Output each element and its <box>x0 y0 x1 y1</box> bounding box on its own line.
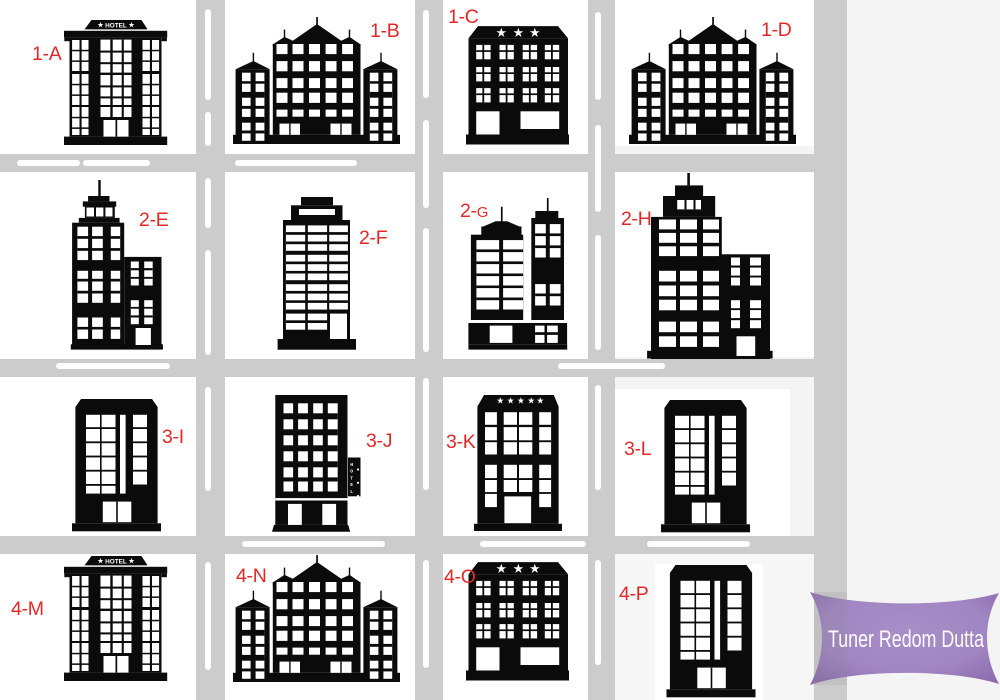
svg-text:L: L <box>350 489 353 495</box>
svg-text:H: H <box>350 462 353 468</box>
svg-text:T: T <box>350 475 353 481</box>
svg-text:Tuner Redom Dutta: Tuner Redom Dutta <box>828 626 984 653</box>
svg-text:O: O <box>350 469 353 475</box>
svg-text:E: E <box>350 482 353 488</box>
